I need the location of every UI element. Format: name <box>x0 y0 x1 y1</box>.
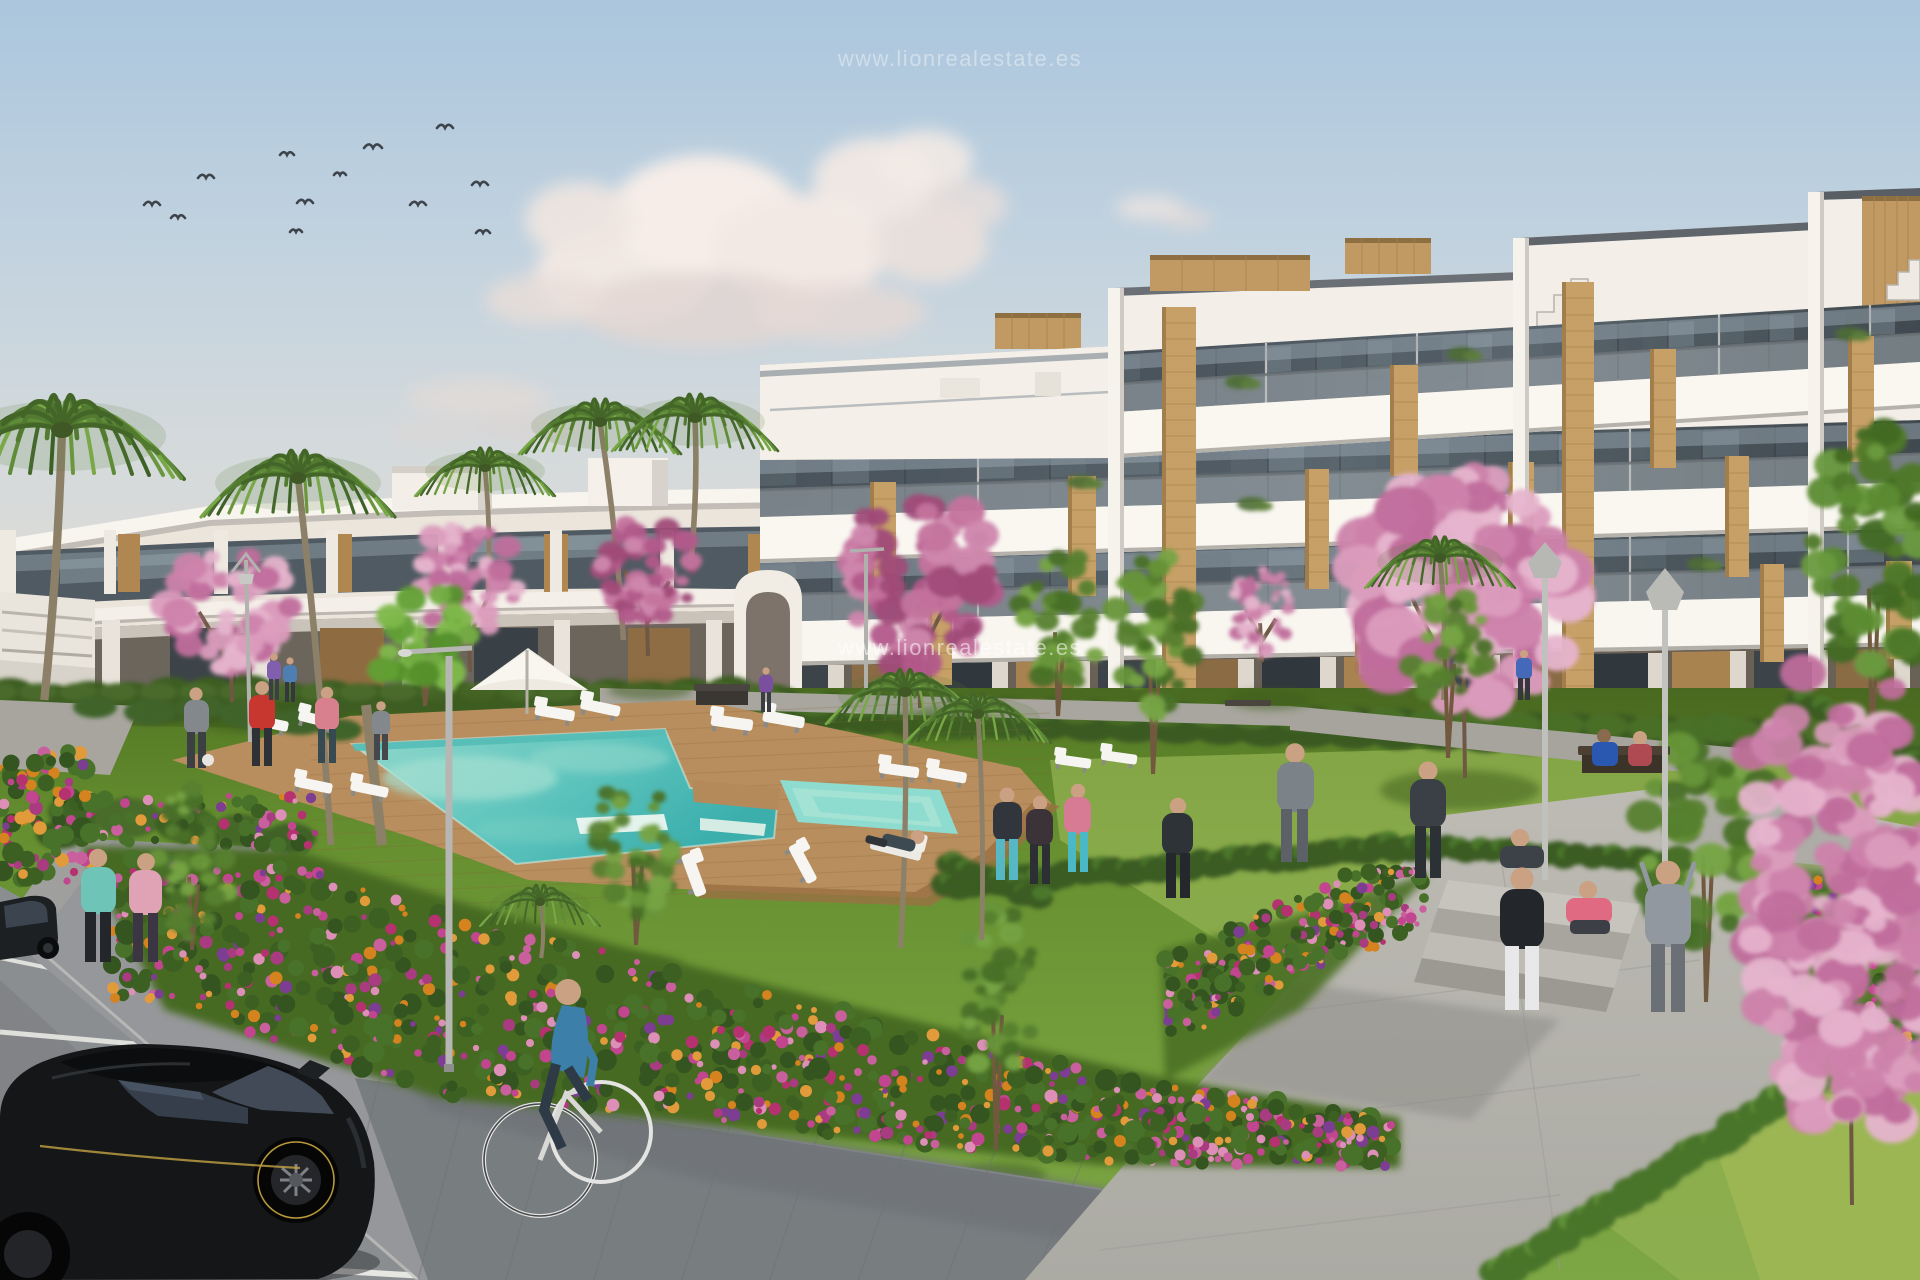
svg-text:www.lionrealestate.es: www.lionrealestate.es <box>837 46 1082 71</box>
svg-text:www.lionrealestate.es: www.lionrealestate.es <box>837 635 1082 660</box>
